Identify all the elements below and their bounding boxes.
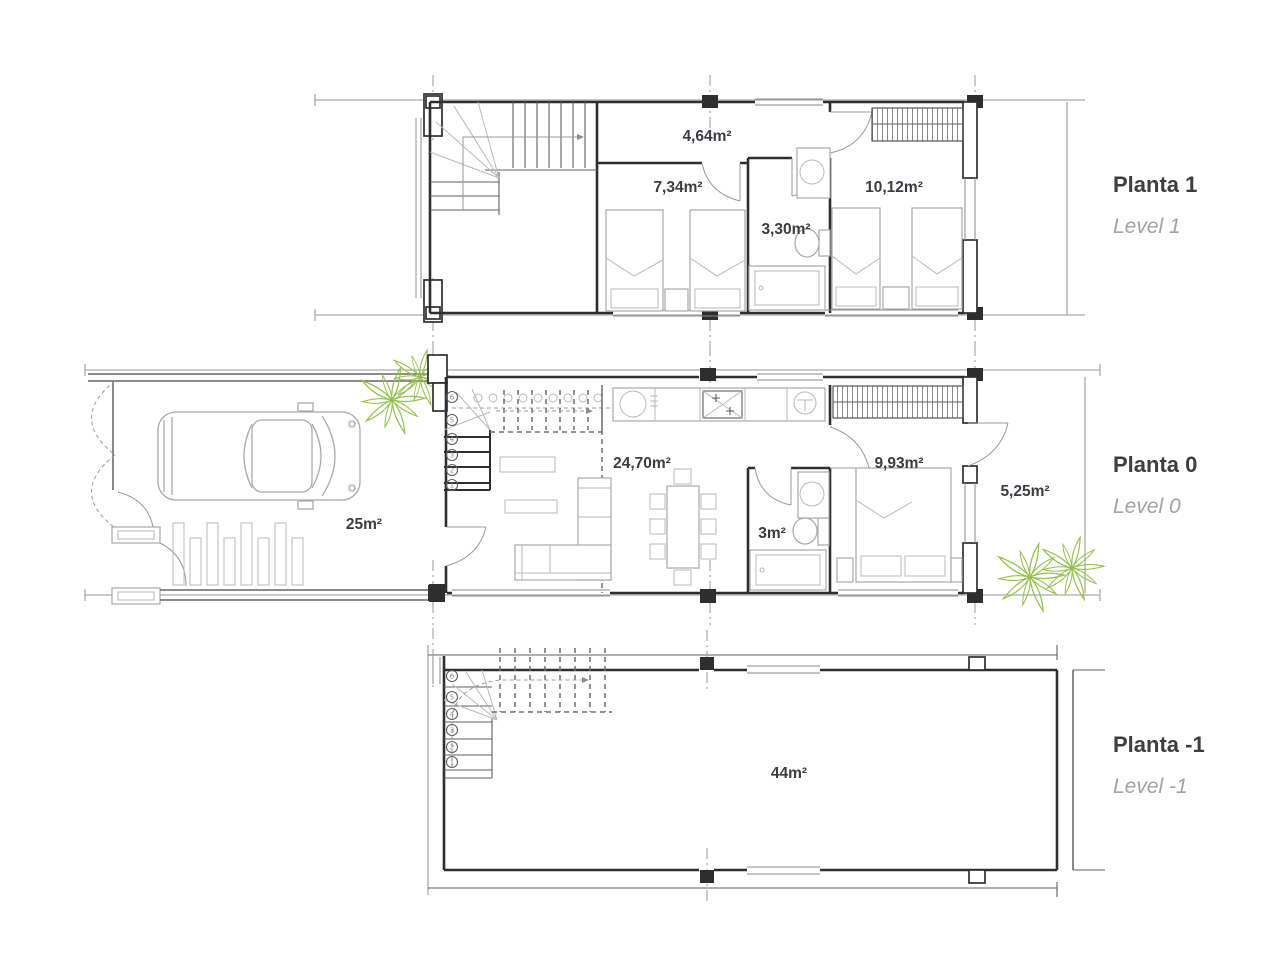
floor-plan-level-0: 6 5 4 3 2 1 [85, 345, 1104, 625]
area-label-terrace: 5,25m² [1000, 483, 1049, 500]
beds-bedroom-2 [832, 208, 962, 309]
area-label-basement: 44m² [771, 765, 807, 782]
area-label-hall: 4,64m² [682, 128, 731, 145]
plant-icon-terrace [998, 537, 1104, 612]
staircase-level-1 [430, 102, 597, 215]
area-label-bathroom-l0: 3m² [758, 525, 786, 542]
living-room-furniture [500, 457, 611, 580]
kitchen-wall-units [474, 394, 602, 402]
level-title-planta-minus-1: Planta -1 [1113, 732, 1205, 758]
svg-text:1: 1 [450, 759, 454, 767]
wardrobe-bedroom-2 [872, 108, 963, 141]
svg-text:3: 3 [450, 727, 454, 735]
svg-text:6: 6 [450, 673, 455, 681]
svg-text:1: 1 [450, 482, 454, 490]
area-label-garage: 25m² [346, 516, 382, 533]
svg-text:2: 2 [450, 467, 454, 475]
area-label-bathroom-l1: 3,30m² [761, 221, 810, 238]
level-subtitle-level-1: Level 1 [1113, 215, 1181, 239]
svg-text:6: 6 [450, 394, 455, 402]
svg-text:5: 5 [450, 694, 454, 702]
area-label-living: 24,70m² [613, 455, 671, 472]
area-label-bedroom-2: 10,12m² [865, 179, 923, 196]
car-illustration [158, 403, 360, 509]
floor-plan-level-minus-1: 6 5 4 3 2 1 44m² [428, 628, 1105, 905]
doors-level-1 [702, 112, 872, 201]
floor-plan-drawing: 4,64m² 7,34m² 3,30m² 10,12m² [0, 0, 1280, 960]
dining-table-and-chairs [650, 469, 716, 585]
level-title-planta-0: Planta 0 [1113, 452, 1197, 478]
level-title-planta-1-upper: Planta 1 [1113, 172, 1197, 198]
walls-level-minus-1 [433, 656, 1057, 883]
svg-text:2: 2 [450, 744, 454, 752]
floor-plan-level-1: 4,64m² 7,34m² 3,30m² 10,12m² [315, 75, 1085, 345]
kitchen-counter [452, 388, 825, 421]
svg-text:4: 4 [450, 436, 455, 444]
area-label-bedroom-l0: 9,93m² [874, 455, 923, 472]
beds-bedroom-1 [606, 210, 745, 311]
stair-step-numbers-level-minus-1: 6 5 4 3 2 1 [447, 671, 458, 768]
svg-text:5: 5 [450, 417, 454, 425]
bedroom-level-0 [833, 386, 963, 582]
svg-text:3: 3 [450, 452, 454, 460]
deck-slats [173, 523, 303, 585]
level-subtitle-level-0: Level 0 [1113, 495, 1181, 519]
stair-step-numbers-level-0: 6 5 4 3 2 1 [447, 392, 458, 491]
svg-text:4: 4 [450, 711, 455, 719]
level-subtitle-level-minus-1: Level -1 [1113, 775, 1188, 799]
area-label-bedroom-1: 7,34m² [653, 179, 702, 196]
staircase-level-minus-1: 6 5 4 3 2 1 [444, 648, 612, 778]
floor-plan-sheet: 4,64m² 7,34m² 3,30m² 10,12m² [0, 0, 1280, 960]
garage [88, 349, 448, 604]
